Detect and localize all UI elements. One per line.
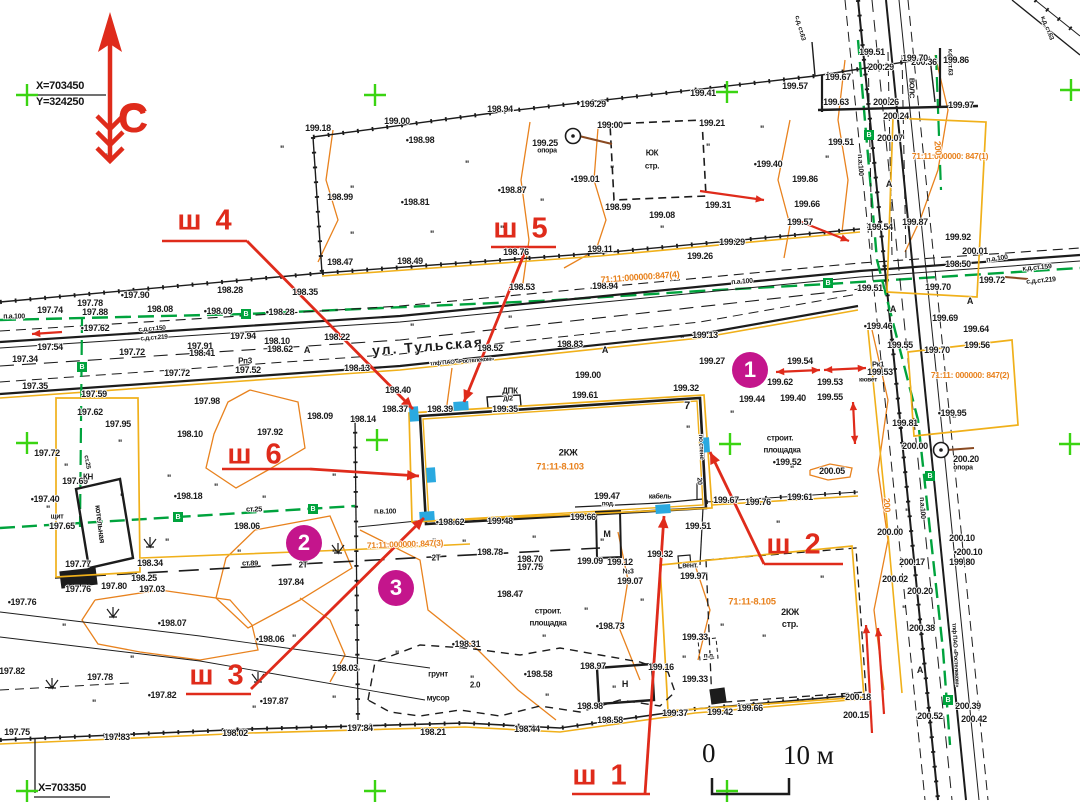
elevation-label: 199.97 — [680, 571, 706, 581]
elevation-label: •198.31 — [452, 639, 481, 649]
elevation-label: 198.39 — [427, 404, 453, 414]
elevation-label: 199.66 — [794, 199, 820, 209]
cadastral-label: 71:11:000000: 847(1) — [912, 151, 989, 161]
elevation-label: 198.47 — [327, 257, 353, 267]
elevation-label: 199.42 — [707, 707, 733, 717]
pit-label-sh3: ш 3 — [189, 660, 246, 693]
cadastral-label: 71:11-8.105 — [728, 597, 776, 608]
pole-dot — [939, 448, 943, 452]
elevation-label: мусор — [427, 694, 450, 703]
elevation-label: М — [603, 529, 610, 539]
grass-symbol: " — [540, 197, 544, 207]
map-polygon — [710, 688, 726, 704]
grass-symbol: " — [905, 507, 909, 517]
elevation-label: 197.75 — [4, 727, 30, 737]
grass-symbol: " — [612, 684, 616, 694]
elevation-label: 199.66 — [737, 703, 763, 713]
elevation-label: 199.48 — [487, 516, 513, 526]
elevation-label: 197.03 — [139, 584, 165, 594]
elevation-label: 197.54 — [37, 342, 63, 352]
elevation-label: 197.94 — [230, 331, 256, 341]
point-circle-1: 1 — [732, 352, 768, 388]
elevation-label: строит. — [535, 607, 561, 616]
elevation-label: •199.52 — [773, 457, 802, 467]
tree-icon — [46, 678, 58, 688]
building-yuk-dashed — [610, 120, 706, 200]
elevation-label: 198.49 — [397, 256, 423, 266]
elevation-label: 200.39 — [955, 701, 981, 711]
elevation-label: •198.09 — [204, 306, 233, 316]
arrowhead — [776, 368, 784, 375]
grass-symbol: " — [610, 164, 614, 174]
elevation-label: 197.72 — [34, 448, 60, 458]
elevation-label: грунт — [428, 670, 448, 679]
valve-letter: В — [243, 311, 248, 318]
elevation-label: 197.35 — [22, 381, 48, 391]
elevation-label: 2Т — [432, 554, 441, 563]
elevation-label: •199.40 — [754, 159, 783, 169]
elevation-label: 198.97 — [580, 661, 606, 671]
pole-dot — [571, 134, 575, 138]
elevation-label: 199.44 — [739, 394, 765, 404]
grass-symbol: " — [118, 438, 122, 448]
elevation-label: Н — [622, 679, 628, 689]
map-line — [80, 318, 82, 527]
red-arrow — [878, 628, 884, 714]
grass-symbol: " — [332, 694, 336, 704]
elevation-label: 197.80 — [101, 581, 127, 591]
elevation-label: 197.72 — [164, 368, 190, 378]
grid-cross-icon — [1060, 79, 1080, 101]
elevation-label: 197.78 — [87, 672, 113, 682]
elevation-label: 198.34 — [137, 558, 163, 568]
elevation-label: 197.95 — [105, 419, 131, 429]
coordinate-label-y-top: Y=324250 — [36, 96, 84, 108]
elevation-label: 199.13 — [692, 330, 718, 340]
elevation-label: площадка — [529, 619, 567, 628]
elevation-label: п.в.100 — [374, 509, 396, 516]
elevation-label: кювет — [859, 377, 877, 384]
elevation-label: 197.52 — [235, 365, 261, 375]
elevation-label: 198.78 — [477, 547, 503, 557]
elevation-label: 198.22 — [324, 332, 350, 342]
elevation-label: 199.70 — [925, 282, 951, 292]
cadastral-label: 200 — [932, 141, 943, 156]
map-line — [0, 683, 130, 690]
elevation-label: 199.63 — [823, 97, 849, 107]
grass-symbol: " — [280, 144, 284, 154]
elevation-label: опора — [537, 148, 557, 155]
grid-cross-icon — [366, 429, 388, 451]
elevation-label: площадка — [763, 446, 801, 455]
pit-marker — [426, 467, 436, 483]
grass-symbol: " — [462, 538, 466, 548]
grass-symbol: " — [825, 154, 829, 164]
valve-letter: В — [175, 514, 180, 521]
elevation-label: 200.18 — [845, 692, 871, 702]
elevation-label: 20 — [695, 477, 702, 485]
elevation-label: 199.53 — [817, 377, 843, 387]
elevation-label: А — [304, 345, 311, 355]
map-line — [313, 137, 322, 273]
grass-symbol: " — [465, 159, 469, 169]
elevation-label: А — [967, 296, 974, 306]
elevation-label: 199.53 — [867, 367, 893, 377]
elevation-label: •197.90 — [121, 290, 150, 300]
scale-bar-ten: 10 м — [783, 740, 834, 771]
elevation-label: 199.32 — [647, 549, 673, 559]
pole-tail — [947, 448, 974, 450]
grass-symbol: " — [545, 692, 549, 702]
grass-symbol: " — [350, 230, 354, 240]
pit-label-sh5: ш 5 — [493, 213, 550, 246]
elevation-label: 2КЖ — [781, 607, 800, 617]
grass-symbol: " — [776, 519, 780, 529]
arrowhead — [850, 402, 857, 410]
elevation-label: 197.59 — [81, 389, 107, 399]
elevation-label: •199.95 — [938, 408, 967, 418]
elevation-label: 199.87 — [902, 217, 928, 227]
grass-symbol: " — [92, 698, 96, 708]
cadastral-label: 71:11: 000000: 847(2) — [931, 370, 1010, 380]
elevation-label: КН — [83, 473, 94, 482]
grass-symbol: " — [165, 537, 169, 547]
elevation-label: к.д. ст.63 — [1039, 15, 1055, 41]
pit-label-sh2: ш 2 — [766, 529, 823, 562]
elevation-label: ДПК — [502, 387, 518, 396]
map-line — [1005, 277, 1028, 279]
grid-cross-icon — [364, 780, 386, 802]
elevation-label: п.а.100 — [918, 497, 926, 519]
grass-symbol: " — [120, 492, 124, 502]
elevation-label: 199.40 — [780, 393, 806, 403]
grass-symbol: " — [62, 622, 66, 632]
cadastral-label: 71:11:000000:847(4) — [600, 269, 680, 284]
grass-symbol: " — [292, 633, 296, 643]
elevation-label: 198.06 — [234, 521, 260, 531]
elevation-label: 200.01 — [962, 246, 988, 256]
pit-label-sh4: ш 4 — [177, 205, 234, 238]
grid-cross-icon — [719, 433, 741, 455]
elevation-label: 197.75 — [517, 562, 543, 572]
elevation-label: 199.72 — [979, 275, 1005, 285]
elevation-label: 199.47 — [594, 491, 620, 501]
elevation-label: •198.73 — [596, 621, 625, 631]
elevation-label: 197.88 — [82, 307, 108, 317]
elevation-label: по стене — [697, 434, 705, 460]
pole-tail — [579, 136, 612, 144]
elevation-label: •198.87 — [498, 185, 527, 195]
pit-label-sh1: ш 1 — [572, 760, 629, 793]
elevation-label: 197.98 — [194, 396, 220, 406]
elevation-label: 200.20 — [953, 454, 979, 464]
elevation-label: •197.76 — [8, 597, 37, 607]
elevation-label: 198.76 — [503, 247, 529, 257]
grass-symbol: " — [332, 472, 336, 482]
elevation-label: 198.62 — [267, 344, 293, 354]
elevation-label: тлф ПАО «Ростелеком» — [430, 355, 496, 367]
coordinate-label-x-top: X=703450 — [36, 80, 84, 92]
arrowhead — [812, 367, 820, 374]
elevation-label: •198.18 — [174, 491, 203, 501]
elevation-label: к.д.ст.159 — [1022, 263, 1052, 273]
elevation-label: ст.25 — [246, 505, 262, 514]
grass-symbol: " — [64, 462, 68, 472]
contour-line — [521, 122, 530, 290]
elevation-label: 198.10 — [177, 429, 203, 439]
elevation-label: 7 — [684, 400, 690, 412]
elevation-label: 200.29 — [868, 62, 894, 72]
elevation-label: 198.08 — [147, 304, 173, 314]
elevation-label: ВОЛС — [908, 78, 917, 99]
elevation-label: стр. — [782, 619, 798, 629]
pit-marker — [453, 401, 469, 411]
arrowhead — [407, 470, 419, 481]
elevation-label: 197.83 — [104, 732, 130, 742]
elevation-label: 198.53 — [509, 282, 535, 292]
elevation-label: 198.50 — [945, 259, 971, 269]
grid-cross-icon — [1059, 433, 1080, 455]
arrowhead — [824, 366, 832, 373]
valve-letter: В — [927, 473, 932, 480]
grass-symbol: " — [820, 574, 824, 584]
elevation-label: •198.62 — [436, 517, 465, 527]
pit-label-sh6: ш 6 — [227, 439, 284, 472]
elevation-label: 2Т — [299, 561, 308, 570]
grass-symbol: " — [720, 622, 724, 632]
elevation-label: 199.27 — [699, 356, 725, 366]
elevation-label: 199.29 — [719, 237, 745, 247]
elevation-label: 199.11 — [587, 244, 613, 254]
grass-symbol: " — [706, 142, 710, 152]
grass-symbol: " — [46, 504, 50, 514]
elevation-label: 199.66 — [570, 512, 596, 522]
elevation-label: 199.18 — [305, 123, 331, 133]
elevation-label: 199.51 — [685, 521, 711, 531]
elevation-label: 198.03 — [332, 663, 358, 673]
elevation-label: п.а.100 — [986, 254, 1009, 264]
elevation-label: 200.42 — [961, 714, 987, 724]
elevation-label: 198.94 — [487, 104, 513, 114]
elevation-label: котельная — [93, 504, 107, 544]
elevation-label: 2КЖ — [559, 448, 578, 459]
valve-letter: В — [310, 506, 315, 513]
elevation-label: 199.12 — [607, 557, 633, 567]
grass-symbol: " — [237, 548, 241, 558]
elevation-label: 198.98 — [577, 701, 603, 711]
elevation-label: 199.54 — [867, 222, 893, 232]
valve-letter: В — [866, 132, 871, 139]
elevation-label: 199.41 — [690, 88, 716, 98]
grass-symbol: " — [682, 654, 686, 664]
elevation-label: 200.00 — [902, 441, 928, 451]
elevation-label: 2.0 — [470, 681, 481, 690]
elevation-label: №3 — [622, 568, 634, 576]
elevation-label: 199.00 — [597, 120, 623, 130]
elevation-label: 199.57 — [782, 81, 808, 91]
grass-symbol: " — [532, 534, 536, 544]
elevation-label: 200.38 — [909, 623, 935, 633]
arrowhead — [658, 516, 669, 528]
grass-symbol: " — [762, 633, 766, 643]
elevation-label: 200.00 — [877, 527, 903, 537]
elevation-label: 200.05 — [819, 466, 845, 476]
pit-leader — [310, 469, 419, 476]
grid-cross-icon — [16, 84, 38, 106]
tree-icon — [107, 607, 119, 617]
pit-marker — [655, 504, 671, 514]
grass-symbol: " — [214, 482, 218, 492]
elevation-label: 197.34 — [12, 354, 38, 364]
elevation-label: 199.86 — [943, 55, 969, 65]
elevation-label: 200.15 — [843, 710, 869, 720]
elevation-label: 200.20 — [907, 586, 933, 596]
elevation-label: 197.65 — [49, 521, 75, 531]
arrowhead — [858, 365, 866, 372]
grass-symbol: " — [410, 322, 414, 332]
elevation-label: •197.40 — [31, 494, 60, 504]
elevation-label: 200.24 — [883, 111, 909, 121]
grid-cross-icon — [364, 84, 386, 106]
grass-symbol: " — [686, 424, 690, 434]
pit-leader — [710, 452, 764, 564]
elevation-label: п.л. — [704, 653, 715, 660]
elevation-label: 198.99 — [327, 192, 353, 202]
point-circle-3: 3 — [378, 570, 414, 606]
grass-symbol: " — [640, 597, 644, 607]
elevation-label: 199.37 — [662, 708, 688, 718]
elevation-label: •198.07 — [158, 618, 187, 628]
elevation-label: •197.82 — [148, 690, 177, 700]
grid-cross-icon — [716, 780, 738, 802]
elevation-label: 199.09 — [577, 556, 603, 566]
elevation-label: 199.86 — [792, 174, 818, 184]
elevation-label: 197.76 — [65, 584, 91, 594]
elevation-label: •199.46 — [864, 321, 893, 331]
debris-mound — [368, 645, 675, 716]
elevation-label: с.д. ст.63 — [793, 15, 807, 42]
elevation-label: •197.62 — [81, 323, 110, 333]
elevation-label: 199.69 — [932, 313, 958, 323]
map-line — [0, 273, 322, 302]
elevation-label: 199.64 — [963, 324, 989, 334]
elevation-label: опора — [953, 465, 973, 472]
elevation-label: 199.33 — [682, 632, 708, 642]
elevation-label: 199.70 — [902, 53, 928, 63]
elevation-label: 199.51 — [857, 283, 883, 293]
cadastral-label: 71:11:000000: 847(3) — [367, 538, 444, 551]
elevation-label: 197.74 — [37, 305, 63, 315]
elevation-label: 197.84 — [347, 723, 373, 733]
topographic-plan: """"""""""""""""""""""""""""""""""""""""… — [0, 0, 1080, 803]
grass-symbol: " — [508, 314, 512, 324]
elevation-label: 199.92 — [945, 232, 971, 242]
map-line — [700, 508, 703, 565]
grass-symbol: " — [167, 473, 171, 483]
elevation-label: п.а.100 — [3, 314, 25, 321]
valve-letter: В — [79, 364, 84, 371]
elevation-label: д/2 — [503, 396, 513, 403]
elevation-label: 199.55 — [817, 392, 843, 402]
elevation-label: 200.07 — [877, 133, 903, 143]
elevation-label: 198.13 — [344, 363, 370, 373]
elevation-label: 200.52 — [917, 711, 943, 721]
elevation-label: п.а.100 — [856, 154, 864, 176]
tree-icon — [144, 537, 156, 547]
elevation-label: 199.70 — [924, 345, 950, 355]
elevation-label: 199.51 — [859, 47, 885, 57]
elevation-label: 200.02 — [882, 574, 908, 584]
elevation-label: п.а.100 — [731, 278, 753, 287]
elevation-label: ул. Тульская — [371, 334, 484, 359]
elevation-label: •198.81 — [401, 197, 430, 207]
grass-symbol: " — [902, 604, 906, 614]
elevation-label: строит. — [767, 434, 793, 443]
elevation-label: 198.37 — [382, 404, 408, 414]
valve-letter: В — [825, 280, 830, 287]
arrowhead — [851, 436, 858, 444]
elevation-label: 198.35 — [292, 287, 318, 297]
elevation-label: 198.83 — [557, 339, 583, 349]
coordinate-label-x-bottom: X=703350 — [38, 782, 86, 794]
elevation-label: 200.10 — [949, 533, 975, 543]
elevation-label: •197.87 — [260, 696, 289, 706]
elevation-label: с.д.ст.219 — [1026, 276, 1056, 286]
elevation-label: А — [890, 304, 897, 314]
scale-bar-zero: 0 — [702, 738, 716, 769]
elevation-label: 199.61 — [787, 492, 813, 502]
grass-symbol: " — [730, 409, 734, 419]
elevation-label: 199.97 — [948, 100, 974, 110]
elevation-label: А — [917, 665, 924, 675]
elevation-label: 198.44 — [514, 724, 540, 734]
grid-cross-icon — [716, 81, 738, 103]
grass-symbol: " — [660, 224, 664, 234]
grass-symbol: " — [262, 494, 266, 504]
elevation-label: 199.00 — [384, 116, 410, 126]
arrowhead — [863, 625, 870, 633]
elevation-label: 198.02 — [222, 728, 248, 738]
elevation-label: 199.32 — [673, 383, 699, 393]
elevation-label: 199.16 — [648, 662, 674, 672]
grass-symbol: " — [430, 229, 434, 239]
elevation-label: щит — [51, 514, 65, 521]
cadastral-label: 71:11-8.103 — [536, 462, 583, 473]
pit-marker — [409, 406, 419, 422]
elevation-label: 197.62 — [77, 407, 103, 417]
map-canvas: """"""""""""""""""""""""""""""""""""""""… — [0, 0, 1080, 803]
elevation-label: 197.72 — [119, 347, 145, 357]
elevation-label: ЮК — [646, 149, 659, 158]
elevation-label: 199.51 — [828, 137, 854, 147]
elevation-label: 199.25 — [532, 138, 558, 148]
elevation-label: 199.57 — [787, 217, 813, 227]
elevation-label: 197.82 — [0, 666, 25, 676]
pit-leader — [464, 247, 527, 402]
elevation-label: кабель — [649, 493, 673, 501]
elevation-label: •198.98 — [406, 135, 435, 145]
elevation-label: 199.08 — [649, 210, 675, 220]
elevation-label: 199.67 — [825, 72, 851, 82]
elevation-label: 198.09 — [307, 411, 333, 421]
elevation-label: 198.58 — [597, 715, 623, 725]
elevation-label: 197.77 — [65, 559, 91, 569]
valve-letter: В — [945, 697, 950, 704]
elevation-label: •200.10 — [954, 547, 983, 557]
elevation-label: 199.54 — [787, 356, 813, 366]
elevation-label: 199.56 — [964, 340, 990, 350]
elevation-label: 199.35 — [492, 404, 518, 414]
